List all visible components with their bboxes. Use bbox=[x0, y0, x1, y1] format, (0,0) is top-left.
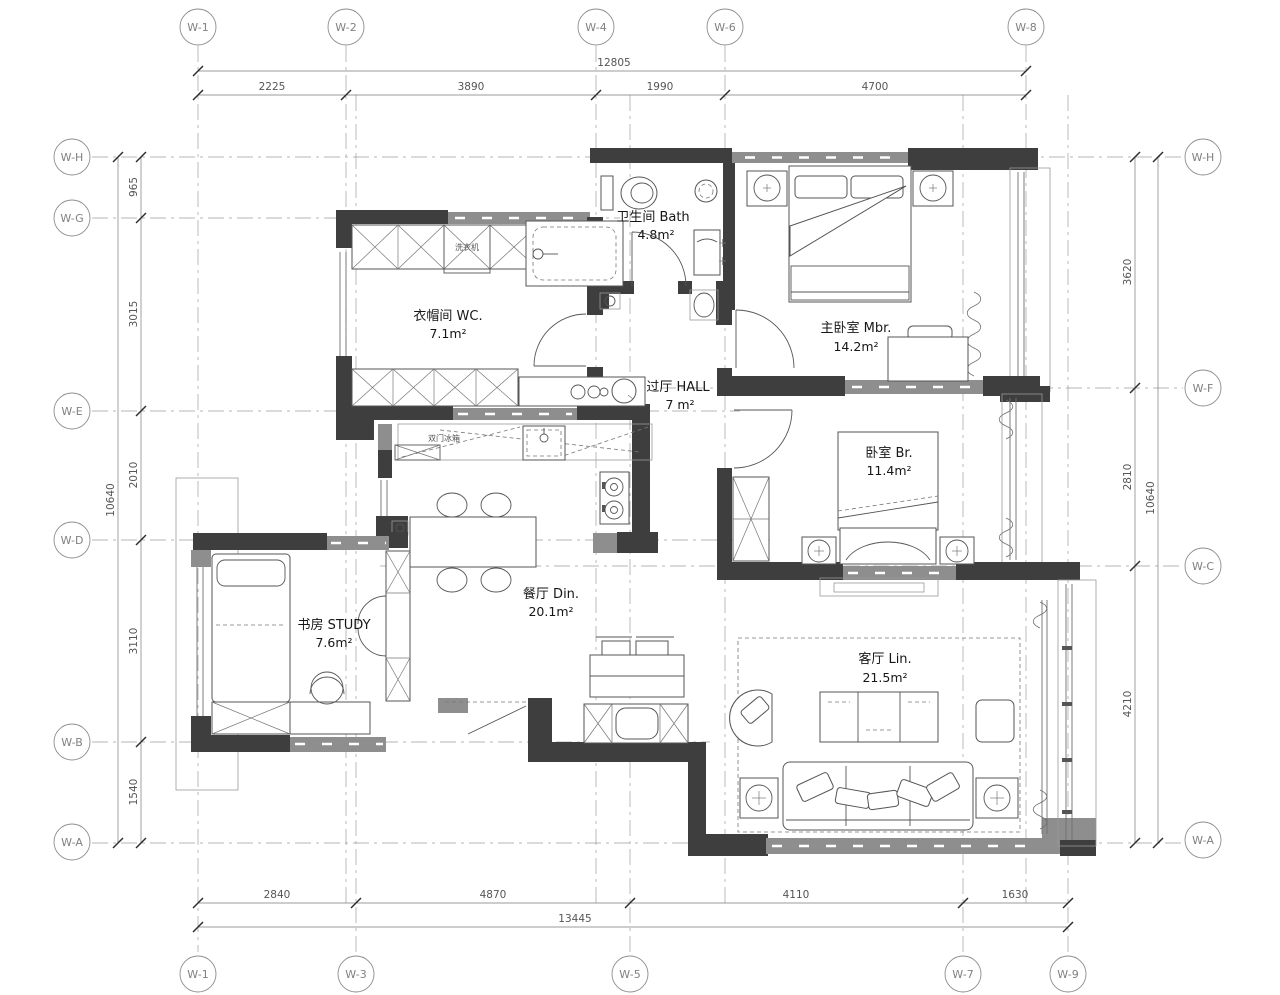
dining-table-set bbox=[410, 493, 536, 592]
dim-top-seg-0: 2225 bbox=[259, 81, 286, 93]
room-label-study: 书房 STUDY bbox=[297, 617, 370, 633]
grid-bubble-top-3: W-6 bbox=[714, 21, 735, 34]
room-area-lin: 21.5m² bbox=[862, 670, 907, 685]
grid-bubble-left-0: W-H bbox=[61, 151, 84, 164]
armchair-icon bbox=[730, 690, 772, 746]
dining-table-icon bbox=[410, 517, 536, 567]
side-square-table-icon bbox=[976, 700, 1014, 742]
floor-plan-canvas: 12805 2225 3890 1990 4700 2840 4870 4110… bbox=[0, 0, 1280, 995]
grid-bubble-bottom-0: W-1 bbox=[187, 968, 208, 981]
hall-vanity bbox=[519, 377, 645, 406]
dim-left-seg-3: 3110 bbox=[128, 628, 140, 655]
entry-furniture bbox=[445, 637, 688, 743]
vanity-icon bbox=[694, 230, 726, 275]
dim-bottom-seg-0: 2840 bbox=[264, 889, 291, 901]
kitchen-furniture bbox=[395, 424, 652, 592]
walls bbox=[176, 148, 1096, 856]
room-area-hall: 7 m² bbox=[665, 397, 694, 412]
dim-right-seg-2: 4210 bbox=[1122, 691, 1134, 718]
dim-right-seg-0: 3620 bbox=[1122, 259, 1134, 286]
dim-top-seg-2: 1990 bbox=[647, 81, 674, 93]
room-area-mbr: 14.2m² bbox=[833, 339, 878, 354]
room-area-bath: 4.8m² bbox=[637, 227, 674, 242]
stove-icon bbox=[600, 472, 629, 524]
living-room-furniture bbox=[730, 638, 1020, 832]
grid-bubble-bottom-4: W-9 bbox=[1057, 968, 1078, 981]
toilet-icon bbox=[601, 176, 657, 210]
desk-chair-icon bbox=[310, 672, 344, 704]
grid-bubble-left-3: W-D bbox=[61, 534, 84, 547]
wardrobe-bottom-row bbox=[352, 369, 518, 406]
toilet2-icon bbox=[694, 293, 714, 317]
grid-bubble-left-1: W-G bbox=[60, 212, 83, 225]
bathtub-icon bbox=[526, 221, 623, 286]
grid-bubble-right-1: W-F bbox=[1193, 382, 1214, 395]
dim-bottom-seg-2: 4110 bbox=[783, 889, 810, 901]
washer-label: 洗衣机 bbox=[455, 242, 479, 252]
room-area-br: 11.4m² bbox=[866, 463, 911, 478]
room-label-hall: 过厅 HALL bbox=[646, 380, 710, 395]
fridge-label: 双门冰箱 bbox=[428, 433, 460, 443]
grid-bubble-bottom-2: W-5 bbox=[619, 968, 640, 981]
dim-top-seg-3: 4700 bbox=[862, 81, 889, 93]
grid-bubble-right-2: W-C bbox=[1192, 560, 1214, 573]
dim-left-seg-0: 965 bbox=[128, 177, 140, 197]
room-area-wc: 7.1m² bbox=[429, 326, 466, 341]
dim-left-overall: 10640 bbox=[105, 483, 117, 516]
bay-window-sill bbox=[820, 578, 938, 596]
room-label-wc: 衣帽间 WC. bbox=[413, 308, 482, 324]
double-bed-icon bbox=[789, 166, 911, 302]
study-furniture bbox=[212, 551, 410, 734]
sofa-icon bbox=[783, 762, 973, 830]
grid-bubble-left-4: W-B bbox=[61, 736, 83, 749]
room-area-din: 20.1m² bbox=[528, 604, 573, 619]
study-desk-icon bbox=[290, 702, 370, 734]
dim-bottom-seg-1: 4870 bbox=[480, 889, 507, 901]
grid-bubble-bottom-3: W-7 bbox=[952, 968, 973, 981]
dim-bottom-seg-3: 1630 bbox=[1002, 889, 1029, 901]
room-label-lin: 客厅 Lin. bbox=[858, 651, 911, 667]
coffee-table-icon bbox=[820, 692, 938, 742]
dim-left-seg-2: 2010 bbox=[128, 462, 140, 489]
dim-right-overall: 10640 bbox=[1145, 481, 1157, 514]
bedroom-door-icon bbox=[734, 410, 792, 468]
grid-bubble-top-0: W-1 bbox=[187, 21, 208, 34]
dim-left-seg-4: 1540 bbox=[128, 779, 140, 806]
grid-bubble-right-3: W-A bbox=[1192, 834, 1214, 847]
single-bed-icon bbox=[212, 554, 290, 702]
entry-door-icon bbox=[468, 706, 526, 734]
dim-left-seg-1: 3015 bbox=[128, 301, 140, 328]
grid-bubble-left-2: W-E bbox=[61, 405, 82, 418]
master-door-icon bbox=[736, 310, 794, 368]
room-label-br: 卧室 Br. bbox=[865, 445, 912, 461]
grid-bubble-top-1: W-2 bbox=[335, 21, 356, 34]
tv-cabinet-icon bbox=[590, 637, 684, 697]
dim-bottom-overall: 13445 bbox=[558, 913, 591, 925]
dim-top-seg-1: 3890 bbox=[458, 81, 485, 93]
dim-top-overall: 12805 bbox=[597, 57, 630, 69]
grid-bubble-right-0: W-H bbox=[1192, 151, 1215, 164]
room-label-bath: 卫生间 Bath bbox=[616, 210, 689, 225]
room-label-din: 餐厅 Din. bbox=[523, 586, 579, 602]
round-sink-icon bbox=[695, 180, 717, 202]
closet-door-icon bbox=[534, 314, 586, 366]
desk-icon bbox=[888, 337, 968, 381]
room-area-study: 7.6m² bbox=[315, 635, 352, 650]
floor-plan-page: 12805 2225 3890 1990 4700 2840 4870 4110… bbox=[0, 0, 1280, 995]
shoe-bench-icon bbox=[584, 704, 688, 743]
wardrobe-top-row bbox=[352, 225, 538, 273]
grid-bubble-top-4: W-8 bbox=[1015, 21, 1036, 34]
kitchen-sink-icon bbox=[523, 426, 565, 460]
room-label-mbr: 主卧室 Mbr. bbox=[821, 320, 892, 336]
dim-right-seg-1: 2810 bbox=[1122, 464, 1134, 491]
grid-bubble-bottom-1: W-3 bbox=[345, 968, 366, 981]
grid-bubble-top-2: W-4 bbox=[585, 21, 606, 34]
wash-basin-icon bbox=[612, 379, 636, 403]
radiator-icons bbox=[967, 292, 1047, 829]
fridge-icon bbox=[395, 445, 440, 460]
study-bottom-cabinet bbox=[212, 702, 290, 734]
bedroom-wardrobe-icon bbox=[733, 477, 769, 561]
grid-bubble-left-5: W-A bbox=[61, 836, 83, 849]
